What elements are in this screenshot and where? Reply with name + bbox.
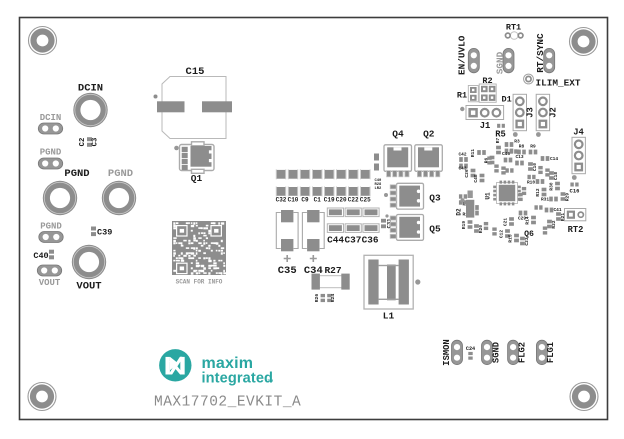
svg-text:D2: D2 — [456, 208, 463, 216]
svg-text:C21: C21 — [503, 218, 509, 226]
svg-text:PGND: PGND — [64, 168, 89, 180]
svg-text:C37: C37 — [344, 235, 361, 246]
svg-text:ILIM_EXT: ILIM_EXT — [536, 78, 581, 89]
svg-text:FLG2: FLG2 — [518, 342, 528, 363]
svg-text:R9: R9 — [530, 144, 536, 150]
svg-text:L1: L1 — [383, 311, 395, 322]
svg-text:PGND: PGND — [108, 168, 133, 180]
svg-text:Q2: Q2 — [423, 129, 435, 140]
svg-text:C22: C22 — [348, 197, 359, 204]
svg-text:Q5: Q5 — [429, 224, 441, 235]
svg-text:Q4: Q4 — [392, 129, 404, 140]
svg-text:VOUT: VOUT — [76, 281, 101, 293]
svg-text:C36: C36 — [362, 235, 379, 246]
svg-text:R21: R21 — [560, 213, 566, 221]
svg-text:R12: R12 — [535, 188, 541, 196]
svg-text:PGND: PGND — [40, 148, 62, 158]
svg-text:R22: R22 — [551, 220, 557, 228]
svg-text:VOUT: VOUT — [39, 278, 61, 288]
svg-text:R11: R11 — [470, 149, 476, 157]
svg-text:C20: C20 — [336, 197, 347, 204]
svg-text:C39: C39 — [97, 228, 112, 238]
svg-text:SGND: SGND — [491, 342, 501, 363]
svg-text:J2: J2 — [549, 107, 559, 118]
svg-text:C44: C44 — [327, 235, 344, 246]
svg-text:C9: C9 — [301, 197, 309, 204]
svg-text:R20: R20 — [478, 225, 484, 233]
svg-text:R1: R1 — [457, 91, 467, 101]
svg-text:C3: C3 — [92, 138, 100, 147]
svg-text:C42: C42 — [458, 152, 466, 158]
svg-text:RT2: RT2 — [568, 225, 584, 235]
svg-text:Q6: Q6 — [524, 230, 534, 239]
svg-text:™: ™ — [267, 379, 274, 386]
svg-text:C40: C40 — [33, 251, 48, 261]
svg-text:C16: C16 — [570, 188, 580, 195]
svg-text:C13: C13 — [515, 154, 523, 160]
svg-text:FLG1: FLG1 — [546, 342, 556, 363]
svg-text:integrated: integrated — [202, 370, 274, 386]
svg-text:C46: C46 — [502, 151, 510, 157]
svg-text:C19: C19 — [324, 197, 335, 204]
svg-text:R27: R27 — [324, 265, 341, 276]
svg-text:PGND: PGND — [40, 222, 62, 232]
svg-text:EN/UVLO: EN/UVLO — [456, 35, 467, 75]
svg-text:U1: U1 — [485, 192, 492, 200]
svg-text:C35: C35 — [278, 265, 297, 277]
svg-text:C10: C10 — [288, 197, 299, 204]
svg-text:DCIN: DCIN — [40, 113, 62, 123]
svg-text:J4: J4 — [573, 128, 584, 138]
svg-text:J3: J3 — [526, 107, 536, 118]
svg-text:R14: R14 — [525, 216, 531, 224]
svg-text:C41: C41 — [553, 207, 561, 213]
svg-text:R19: R19 — [461, 221, 467, 229]
svg-text:R24: R24 — [330, 294, 336, 303]
svg-text:R8: R8 — [519, 144, 525, 150]
svg-text:R29: R29 — [565, 193, 571, 201]
svg-text:DCIN: DCIN — [78, 83, 103, 95]
svg-text:D1: D1 — [502, 95, 512, 105]
svg-text:RT1: RT1 — [506, 23, 521, 33]
svg-text:J1: J1 — [480, 121, 491, 131]
svg-text:C10: C10 — [532, 163, 538, 171]
svg-text:ISMON: ISMON — [442, 339, 452, 365]
svg-text:MAX17702_EVKIT_A: MAX17702_EVKIT_A — [154, 395, 301, 411]
svg-text:R31: R31 — [541, 197, 549, 203]
svg-text:Q1: Q1 — [191, 173, 203, 184]
svg-text:C24: C24 — [466, 346, 475, 352]
svg-text:C48: C48 — [473, 174, 479, 182]
svg-text:C12: C12 — [499, 230, 505, 238]
svg-text:R26: R26 — [314, 294, 320, 303]
svg-text:C32: C32 — [276, 197, 287, 204]
svg-text:R15: R15 — [508, 234, 514, 242]
svg-text:R30: R30 — [549, 182, 555, 190]
svg-text:C25: C25 — [360, 197, 371, 204]
svg-text:Q3: Q3 — [429, 192, 441, 203]
svg-text:C26: C26 — [464, 169, 470, 177]
svg-text:R2: R2 — [482, 76, 492, 86]
svg-text:C18: C18 — [553, 172, 559, 180]
svg-text:C1: C1 — [314, 197, 322, 204]
svg-text:SCAN FOR INFO: SCAN FOR INFO — [176, 279, 223, 286]
svg-text:C2: C2 — [79, 138, 87, 147]
svg-text:R10: R10 — [527, 180, 535, 186]
svg-text:LR2: LR2 — [375, 187, 383, 191]
svg-text:C14: C14 — [550, 156, 558, 162]
svg-text:R7: R7 — [495, 138, 501, 144]
